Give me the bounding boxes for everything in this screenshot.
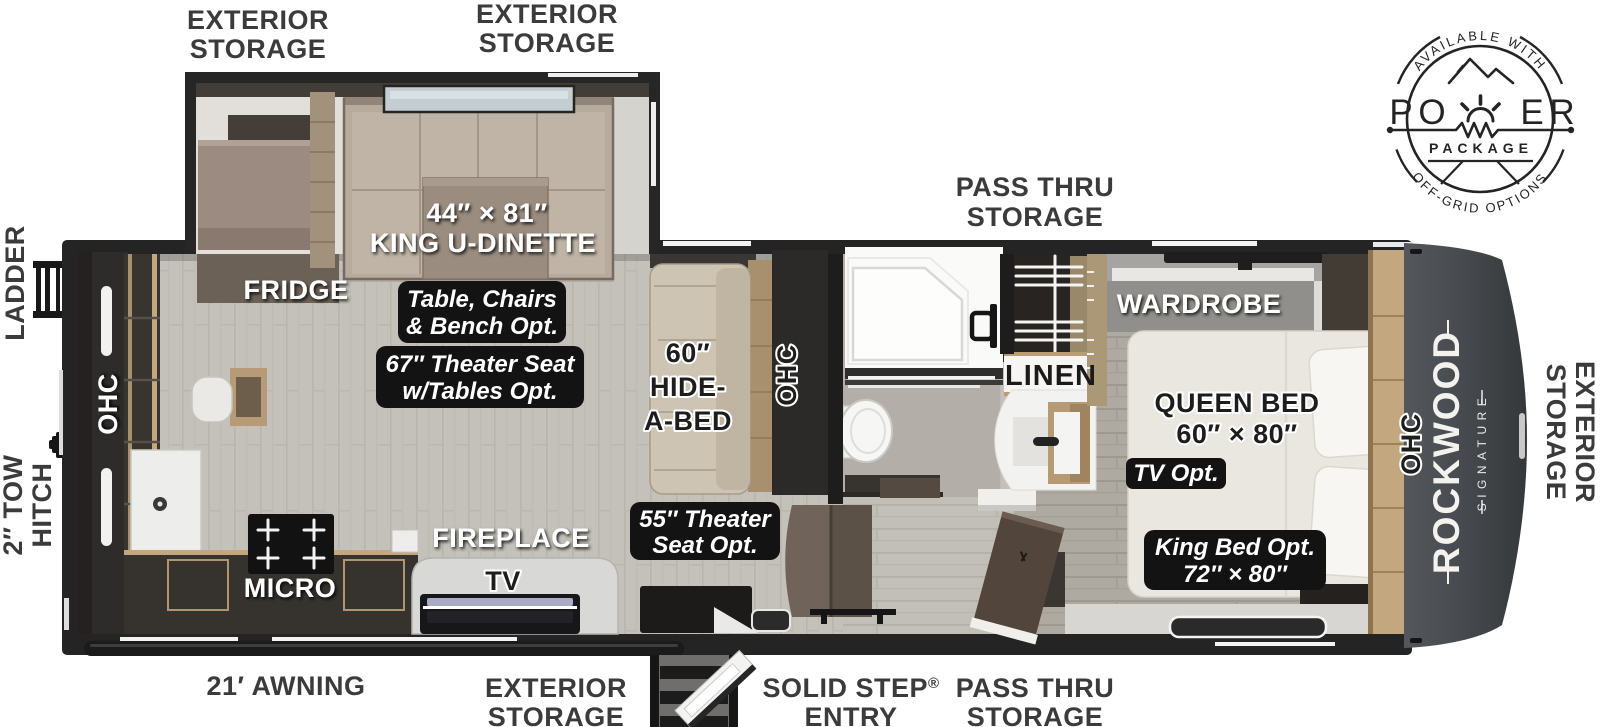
svg-text:STORAGE: STORAGE	[967, 202, 1104, 232]
svg-text:PASS THRU: PASS THRU	[956, 172, 1115, 202]
svg-text:PASS THRU: PASS THRU	[956, 673, 1115, 703]
svg-text:LINEN: LINEN	[1005, 360, 1097, 392]
svg-text:TV: TV	[485, 566, 521, 596]
svg-text:OHC: OHC	[1396, 413, 1426, 475]
svg-text:w/Tables Opt.: w/Tables Opt.	[402, 378, 557, 405]
svg-text:60″ × 80″: 60″ × 80″	[1176, 419, 1297, 449]
svg-text:Seat Opt.: Seat Opt.	[652, 532, 757, 559]
svg-text:ROCKWOOD: ROCKWOOD	[1426, 330, 1467, 574]
svg-text:R: R	[1549, 93, 1574, 132]
svg-text:60″: 60″	[666, 338, 710, 368]
svg-text:44″ × 81″: 44″ × 81″	[426, 198, 547, 228]
svg-text:KING U-DINETTE: KING U-DINETTE	[370, 228, 596, 258]
svg-text:21′ AWNING: 21′ AWNING	[207, 671, 366, 701]
svg-text:OHC: OHC	[93, 373, 123, 435]
svg-text:STORAGE: STORAGE	[967, 702, 1104, 727]
svg-text:STORAGE: STORAGE	[479, 28, 616, 58]
svg-text:EXTERIOR: EXTERIOR	[476, 0, 618, 29]
svg-text:LADDER: LADDER	[0, 225, 30, 341]
svg-text:STORAGE: STORAGE	[1541, 364, 1571, 501]
svg-text:MICRO: MICRO	[244, 573, 337, 603]
svg-text:P: P	[1389, 93, 1412, 132]
svg-text:SOLID STEP®: SOLID STEP®	[762, 673, 939, 703]
svg-text:2″ TOW: 2″ TOW	[0, 455, 28, 556]
svg-text:King Bed Opt.: King Bed Opt.	[1155, 534, 1315, 561]
svg-text:QUEEN BED: QUEEN BED	[1154, 388, 1319, 418]
svg-text:FRIDGE: FRIDGE	[243, 275, 348, 305]
svg-text:HITCH: HITCH	[27, 463, 57, 548]
svg-text:55″ Theater: 55″ Theater	[639, 506, 772, 533]
svg-text:STORAGE: STORAGE	[488, 702, 625, 727]
svg-text:ENTRY: ENTRY	[804, 702, 897, 727]
svg-text:Table, Chairs: Table, Chairs	[407, 286, 557, 313]
svg-text:72″ × 80″: 72″ × 80″	[1183, 561, 1288, 588]
svg-text:E: E	[1520, 93, 1543, 132]
svg-text:PACKAGE: PACKAGE	[1429, 140, 1533, 156]
svg-text:TV Opt.: TV Opt.	[1133, 460, 1218, 487]
svg-text:67″ Theater Seat: 67″ Theater Seat	[386, 351, 576, 378]
svg-text:FIREPLACE: FIREPLACE	[432, 523, 590, 553]
svg-text:EXTERIOR: EXTERIOR	[187, 5, 329, 35]
svg-text:STORAGE: STORAGE	[190, 34, 327, 64]
svg-text:& Bench Opt.: & Bench Opt.	[406, 313, 558, 340]
svg-text:OHC: OHC	[772, 344, 802, 406]
svg-text:O: O	[1418, 93, 1445, 132]
svg-text:SIGNATURE: SIGNATURE	[1475, 393, 1489, 512]
svg-text:EXTERIOR: EXTERIOR	[485, 673, 627, 703]
svg-text:A-BED: A-BED	[644, 406, 732, 436]
svg-text:WARDROBE: WARDROBE	[1117, 289, 1282, 319]
svg-text:EXTERIOR: EXTERIOR	[1570, 361, 1600, 503]
svg-text:HIDE-: HIDE-	[650, 372, 726, 402]
